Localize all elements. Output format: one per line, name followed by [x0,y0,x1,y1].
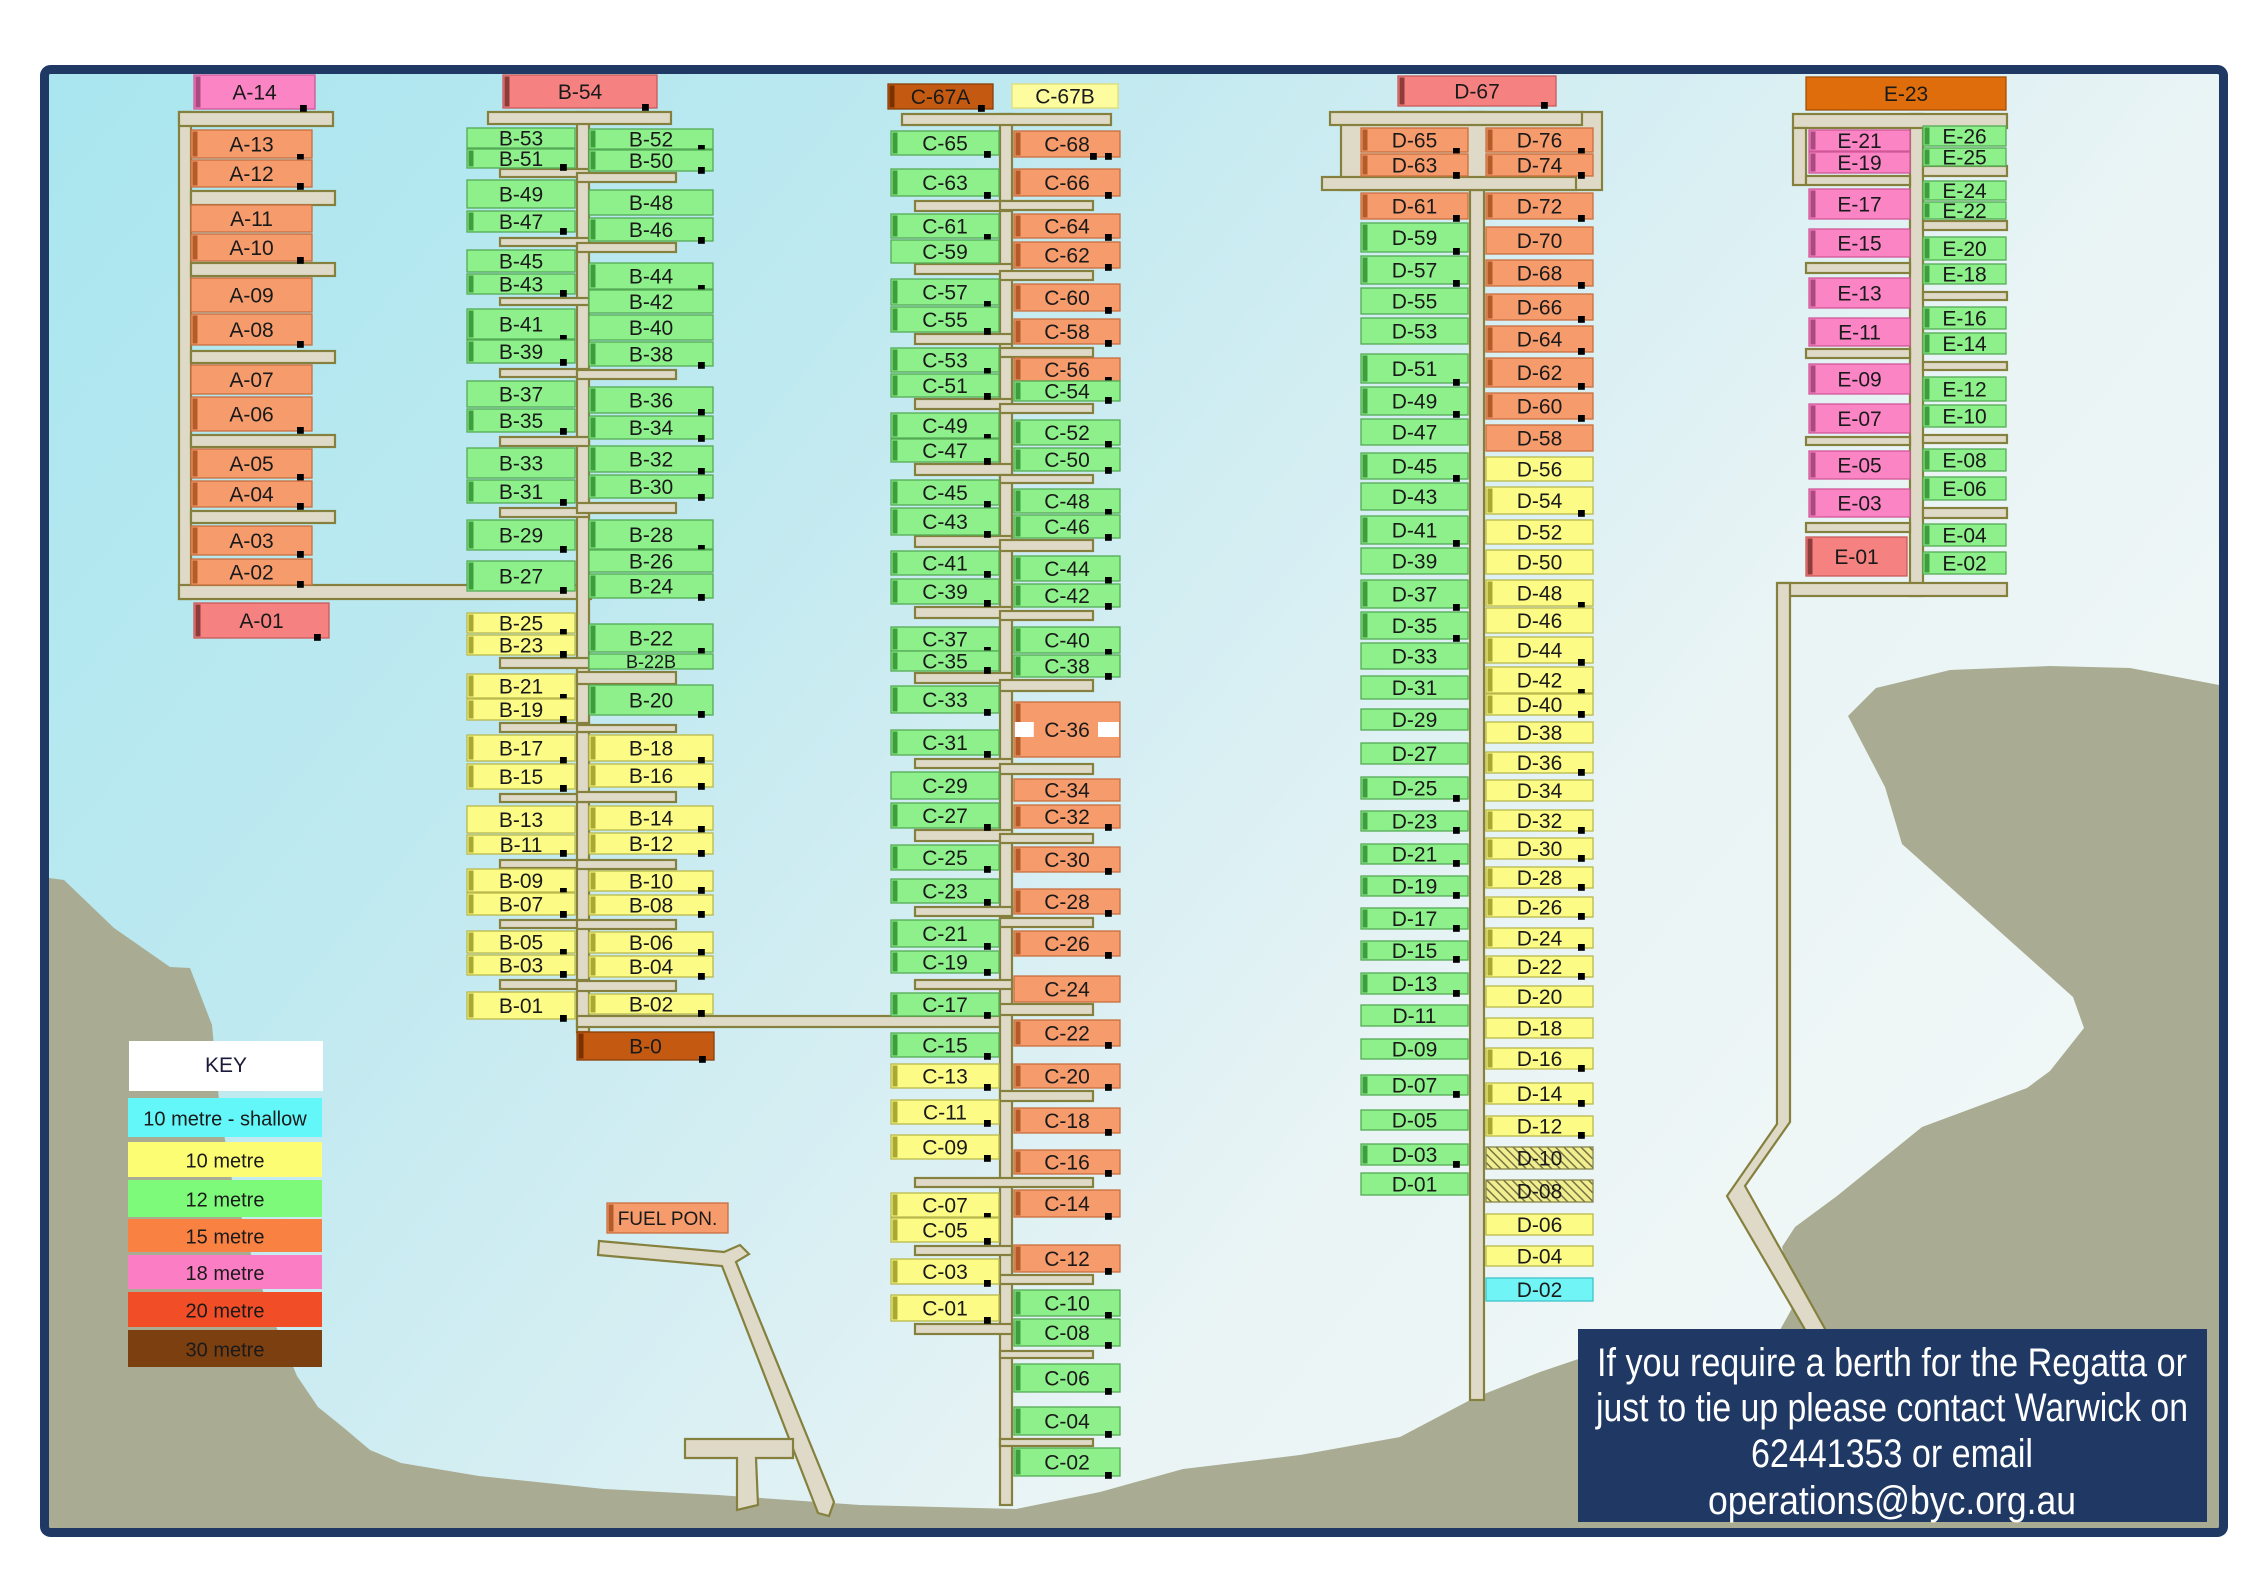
svg-text:10 metre - shallow: 10 metre - shallow [143,1109,307,1131]
svg-text:D-19: D-19 [1392,876,1438,899]
svg-text:C-56: C-56 [1044,359,1090,382]
svg-text:B-07: B-07 [499,894,543,917]
svg-text:D-01: D-01 [1392,1174,1438,1197]
svg-text:C-33: C-33 [922,689,968,712]
svg-text:D-53: D-53 [1392,321,1438,344]
svg-text:D-63: D-63 [1392,155,1438,178]
svg-text:B-04: B-04 [629,956,674,979]
svg-text:D-57: D-57 [1392,260,1438,283]
svg-text:C-52: C-52 [1044,422,1090,445]
svg-text:C-46: C-46 [1044,516,1090,539]
svg-text:D-28: D-28 [1517,867,1563,890]
svg-text:E-01: E-01 [1834,546,1878,569]
svg-text:C-01: C-01 [922,1298,968,1321]
svg-text:C-05: C-05 [922,1220,968,1243]
svg-text:D-18: D-18 [1517,1018,1563,1041]
svg-text:C-50: C-50 [1044,449,1090,472]
svg-text:C-22: C-22 [1044,1023,1090,1046]
svg-text:B-23: B-23 [499,635,543,658]
svg-text:C-28: C-28 [1044,891,1090,914]
svg-text:C-32: C-32 [1044,806,1090,829]
svg-text:E-21: E-21 [1837,130,1881,153]
svg-text:B-41: B-41 [499,314,543,337]
svg-text:E-03: E-03 [1837,493,1881,516]
svg-text:D-48: D-48 [1517,583,1563,606]
svg-text:C-04: C-04 [1044,1411,1090,1434]
svg-text:C-24: C-24 [1044,979,1090,1002]
svg-text:E-08: E-08 [1942,450,1986,473]
svg-text:D-33: D-33 [1392,646,1438,669]
svg-text:B-13: B-13 [499,809,543,832]
svg-text:C-53: C-53 [922,350,968,373]
svg-text:C-07: C-07 [922,1195,968,1218]
svg-text:B-50: B-50 [629,150,673,173]
svg-text:E-17: E-17 [1837,194,1881,217]
svg-text:10 metre: 10 metre [186,1151,265,1173]
svg-text:E-11: E-11 [1838,322,1881,345]
svg-text:D-31: D-31 [1392,677,1438,700]
svg-text:D-09: D-09 [1392,1039,1438,1062]
svg-text:D-61: D-61 [1392,196,1438,219]
svg-text:B-51: B-51 [499,148,543,171]
svg-text:C-16: C-16 [1044,1152,1090,1175]
svg-text:D-29: D-29 [1392,709,1438,732]
svg-text:B-14: B-14 [629,808,674,831]
svg-text:18 metre: 18 metre [186,1263,265,1285]
svg-text:E-12: E-12 [1942,379,1986,402]
svg-text:E-13: E-13 [1837,283,1881,306]
svg-text:B-35: B-35 [499,410,543,433]
svg-text:D-04: D-04 [1517,1246,1563,1269]
svg-text:E-14: E-14 [1942,333,1987,356]
svg-text:C-26: C-26 [1044,933,1090,956]
svg-text:E-07: E-07 [1837,408,1881,431]
svg-text:B-20: B-20 [629,690,673,713]
svg-text:D-49: D-49 [1392,391,1438,414]
svg-text:E-19: E-19 [1837,152,1881,175]
svg-text:D-11: D-11 [1393,1005,1437,1028]
svg-text:C-23: C-23 [922,881,968,904]
svg-text:C-15: C-15 [922,1035,968,1058]
svg-text:C-34: C-34 [1044,780,1090,803]
svg-text:D-72: D-72 [1517,196,1563,219]
svg-text:B-29: B-29 [499,525,543,548]
svg-text:C-06: C-06 [1044,1368,1090,1391]
svg-text:A-03: A-03 [229,530,273,553]
svg-text:C-58: C-58 [1044,321,1090,344]
svg-text:A-11: A-11 [230,208,273,231]
svg-text:B-0: B-0 [629,1036,662,1059]
svg-text:C-54: C-54 [1044,381,1090,404]
svg-text:C-27: C-27 [922,805,968,828]
svg-text:D-38: D-38 [1517,722,1563,745]
svg-text:D-03: D-03 [1392,1144,1438,1167]
svg-text:If you require a berth for the: If you require a berth for the Regatta o… [1597,1341,2187,1385]
svg-text:C-37: C-37 [922,629,968,652]
svg-text:operations@byc.org.au: operations@byc.org.au [1708,1479,2076,1523]
svg-text:FUEL PON.: FUEL PON. [618,1209,718,1230]
svg-text:D-46: D-46 [1517,610,1563,633]
svg-text:E-05: E-05 [1837,455,1881,478]
svg-text:12 metre: 12 metre [186,1190,265,1212]
svg-text:D-22: D-22 [1517,956,1563,979]
svg-text:C-10: C-10 [1044,1293,1090,1316]
svg-text:B-22B: B-22B [626,652,676,672]
svg-text:A-08: A-08 [229,319,273,342]
svg-text:D-27: D-27 [1392,743,1438,766]
svg-text:D-17: D-17 [1392,908,1438,931]
svg-text:C-17: C-17 [922,994,968,1017]
svg-text:C-48: C-48 [1044,491,1090,514]
svg-text:E-25: E-25 [1942,147,1986,170]
svg-text:E-06: E-06 [1942,478,1986,501]
svg-text:B-06: B-06 [629,932,673,955]
svg-text:B-39: B-39 [499,341,543,364]
svg-text:B-01: B-01 [499,995,543,1018]
svg-text:C-42: C-42 [1044,585,1090,608]
svg-text:C-29: C-29 [922,775,968,798]
svg-text:B-19: B-19 [499,699,543,722]
svg-text:D-24: D-24 [1517,928,1563,951]
svg-text:B-27: B-27 [499,566,543,589]
svg-text:E-02: E-02 [1942,553,1986,576]
svg-text:C-36: C-36 [1044,719,1090,742]
svg-text:D-67: D-67 [1454,81,1500,104]
svg-text:A-04: A-04 [229,484,274,507]
svg-text:C-13: C-13 [922,1066,968,1089]
svg-text:A-09: A-09 [229,285,273,308]
svg-text:D-74: D-74 [1517,155,1563,178]
svg-text:C-03: C-03 [922,1261,968,1284]
svg-text:B-26: B-26 [629,551,673,574]
svg-text:C-66: C-66 [1044,172,1090,195]
svg-text:B-12: B-12 [629,833,673,856]
svg-text:E-18: E-18 [1942,264,1986,287]
svg-text:C-02: C-02 [1044,1452,1090,1475]
svg-text:B-22: B-22 [629,628,673,651]
svg-text:E-04: E-04 [1942,525,1987,548]
svg-text:D-62: D-62 [1517,362,1563,385]
svg-text:C-59: C-59 [922,241,968,264]
svg-text:62441353 or email: 62441353 or email [1751,1432,2033,1476]
svg-text:D-15: D-15 [1392,940,1438,963]
svg-text:B-28: B-28 [629,524,673,547]
svg-text:D-45: D-45 [1392,456,1438,479]
svg-text:C-61: C-61 [922,216,968,239]
svg-text:D-25: D-25 [1392,778,1438,801]
svg-text:E-16: E-16 [1942,308,1986,331]
svg-text:D-60: D-60 [1517,396,1563,419]
svg-text:E-26: E-26 [1942,126,1986,149]
svg-text:A-02: A-02 [229,562,273,585]
svg-text:C-65: C-65 [922,133,968,156]
svg-text:C-35: C-35 [922,651,968,674]
svg-text:C-41: C-41 [922,553,968,576]
svg-text:D-13: D-13 [1392,973,1438,996]
svg-text:B-47: B-47 [499,211,543,234]
svg-text:E-22: E-22 [1942,200,1986,223]
svg-text:D-10: D-10 [1517,1148,1563,1171]
svg-text:D-41: D-41 [1392,520,1438,543]
svg-text:15 metre: 15 metre [186,1227,265,1249]
svg-text:C-20: C-20 [1044,1066,1090,1089]
svg-text:D-66: D-66 [1517,297,1563,320]
svg-text:D-59: D-59 [1392,227,1438,250]
svg-text:D-47: D-47 [1392,422,1438,445]
svg-text:B-11: B-11 [500,834,543,857]
svg-text:D-56: D-56 [1517,459,1563,482]
svg-text:D-23: D-23 [1392,811,1438,834]
svg-text:D-20: D-20 [1517,986,1563,1009]
svg-text:B-46: B-46 [629,219,673,242]
svg-text:A-05: A-05 [229,453,273,476]
svg-text:D-26: D-26 [1517,897,1563,920]
svg-text:D-68: D-68 [1517,263,1563,286]
svg-text:A-14: A-14 [232,82,277,105]
svg-text:B-09: B-09 [499,870,543,893]
svg-text:D-35: D-35 [1392,615,1438,638]
svg-text:B-40: B-40 [629,317,673,340]
svg-text:A-01: A-01 [239,610,283,633]
svg-text:D-37: D-37 [1392,584,1438,607]
svg-text:D-36: D-36 [1517,752,1563,775]
svg-text:C-39: C-39 [922,581,968,604]
svg-text:D-08: D-08 [1517,1181,1563,1204]
svg-text:E-15: E-15 [1837,233,1881,256]
svg-text:B-44: B-44 [629,266,674,289]
svg-text:C-45: C-45 [922,482,968,505]
svg-text:C-21: C-21 [922,923,968,946]
svg-text:C-31: C-31 [922,732,968,755]
svg-text:B-49: B-49 [499,184,543,207]
svg-text:C-30: C-30 [1044,849,1090,872]
svg-text:D-21: D-21 [1392,844,1438,867]
svg-text:D-43: D-43 [1392,486,1438,509]
svg-text:C-40: C-40 [1044,630,1090,653]
svg-text:D-40: D-40 [1517,694,1563,717]
svg-text:B-05: B-05 [499,932,543,955]
svg-text:B-15: B-15 [499,766,543,789]
svg-text:C-43: C-43 [922,511,968,534]
svg-text:C-57: C-57 [922,282,968,305]
svg-text:C-60: C-60 [1044,287,1090,310]
svg-text:D-64: D-64 [1517,329,1563,352]
svg-text:D-44: D-44 [1517,640,1563,663]
svg-text:C-62: C-62 [1044,245,1090,268]
svg-text:C-67B: C-67B [1035,86,1095,109]
svg-text:B-02: B-02 [629,994,673,1017]
svg-text:D-55: D-55 [1392,291,1438,314]
svg-text:D-51: D-51 [1392,358,1438,381]
svg-text:D-14: D-14 [1517,1083,1563,1106]
svg-text:B-31: B-31 [499,481,543,504]
svg-text:D-06: D-06 [1517,1214,1563,1237]
svg-text:B-08: B-08 [629,895,673,918]
svg-text:C-18: C-18 [1044,1110,1090,1133]
svg-text:B-48: B-48 [629,192,673,215]
svg-text:C-47: C-47 [922,440,968,463]
svg-text:A-12: A-12 [229,163,273,186]
svg-text:KEY: KEY [205,1054,247,1077]
svg-text:30 metre: 30 metre [186,1340,265,1362]
svg-text:just to tie up please contact: just to tie up please contact Warwick on [1595,1386,2188,1430]
svg-text:B-52: B-52 [629,129,673,152]
svg-text:A-06: A-06 [229,404,273,427]
svg-text:D-39: D-39 [1392,551,1438,574]
svg-text:B-18: B-18 [629,738,673,761]
svg-text:B-43: B-43 [499,274,543,297]
svg-text:A-10: A-10 [229,237,273,260]
svg-text:A-13: A-13 [229,134,273,157]
svg-text:D-58: D-58 [1517,428,1563,451]
svg-text:B-24: B-24 [629,576,674,599]
svg-text:B-03: B-03 [499,955,543,978]
svg-text:D-54: D-54 [1517,490,1563,513]
svg-text:B-16: B-16 [629,765,673,788]
svg-text:D-02: D-02 [1517,1279,1563,1302]
svg-text:B-32: B-32 [629,449,673,472]
svg-text:C-55: C-55 [922,309,968,332]
svg-text:C-51: C-51 [922,375,968,398]
svg-text:D-34: D-34 [1517,780,1563,803]
svg-text:D-05: D-05 [1392,1110,1438,1133]
svg-text:B-45: B-45 [499,251,543,274]
svg-text:B-17: B-17 [499,738,543,761]
svg-text:C-38: C-38 [1044,656,1090,679]
svg-text:C-49: C-49 [922,415,968,438]
svg-text:D-16: D-16 [1517,1048,1563,1071]
svg-text:B-54: B-54 [558,81,603,104]
svg-text:C-68: C-68 [1044,134,1090,157]
svg-text:D-07: D-07 [1392,1075,1438,1098]
svg-text:B-33: B-33 [499,453,543,476]
svg-text:C-14: C-14 [1044,1193,1090,1216]
svg-text:B-30: B-30 [629,476,673,499]
svg-text:C-67A: C-67A [911,86,971,109]
svg-text:C-44: C-44 [1044,558,1090,581]
svg-text:B-37: B-37 [499,384,543,407]
svg-text:C-19: C-19 [922,952,968,975]
svg-text:E-10: E-10 [1942,406,1986,429]
svg-text:E-20: E-20 [1942,238,1986,261]
svg-text:B-10: B-10 [629,871,673,894]
svg-text:B-25: B-25 [499,613,543,636]
svg-text:A-07: A-07 [229,369,273,392]
svg-text:D-32: D-32 [1517,810,1563,833]
svg-text:C-09: C-09 [922,1137,968,1160]
svg-text:C-11: C-11 [923,1102,967,1125]
svg-text:C-64: C-64 [1044,216,1090,239]
svg-text:B-36: B-36 [629,390,673,413]
svg-text:D-52: D-52 [1517,522,1563,545]
svg-text:D-70: D-70 [1517,230,1563,253]
svg-text:B-42: B-42 [629,291,673,314]
svg-text:D-42: D-42 [1517,670,1563,693]
svg-text:C-25: C-25 [922,847,968,870]
svg-text:B-38: B-38 [629,344,673,367]
svg-text:B-21: B-21 [499,676,543,699]
svg-text:C-12: C-12 [1044,1248,1090,1271]
svg-text:D-50: D-50 [1517,552,1563,575]
svg-text:D-76: D-76 [1517,130,1563,153]
svg-text:D-12: D-12 [1517,1116,1563,1139]
svg-text:D-65: D-65 [1392,130,1438,153]
svg-text:C-08: C-08 [1044,1322,1090,1345]
svg-text:C-63: C-63 [922,172,968,195]
svg-text:20 metre: 20 metre [186,1301,265,1323]
svg-text:D-30: D-30 [1517,838,1563,861]
svg-text:E-09: E-09 [1837,369,1881,392]
svg-text:E-23: E-23 [1884,83,1928,106]
svg-text:B-34: B-34 [629,417,674,440]
